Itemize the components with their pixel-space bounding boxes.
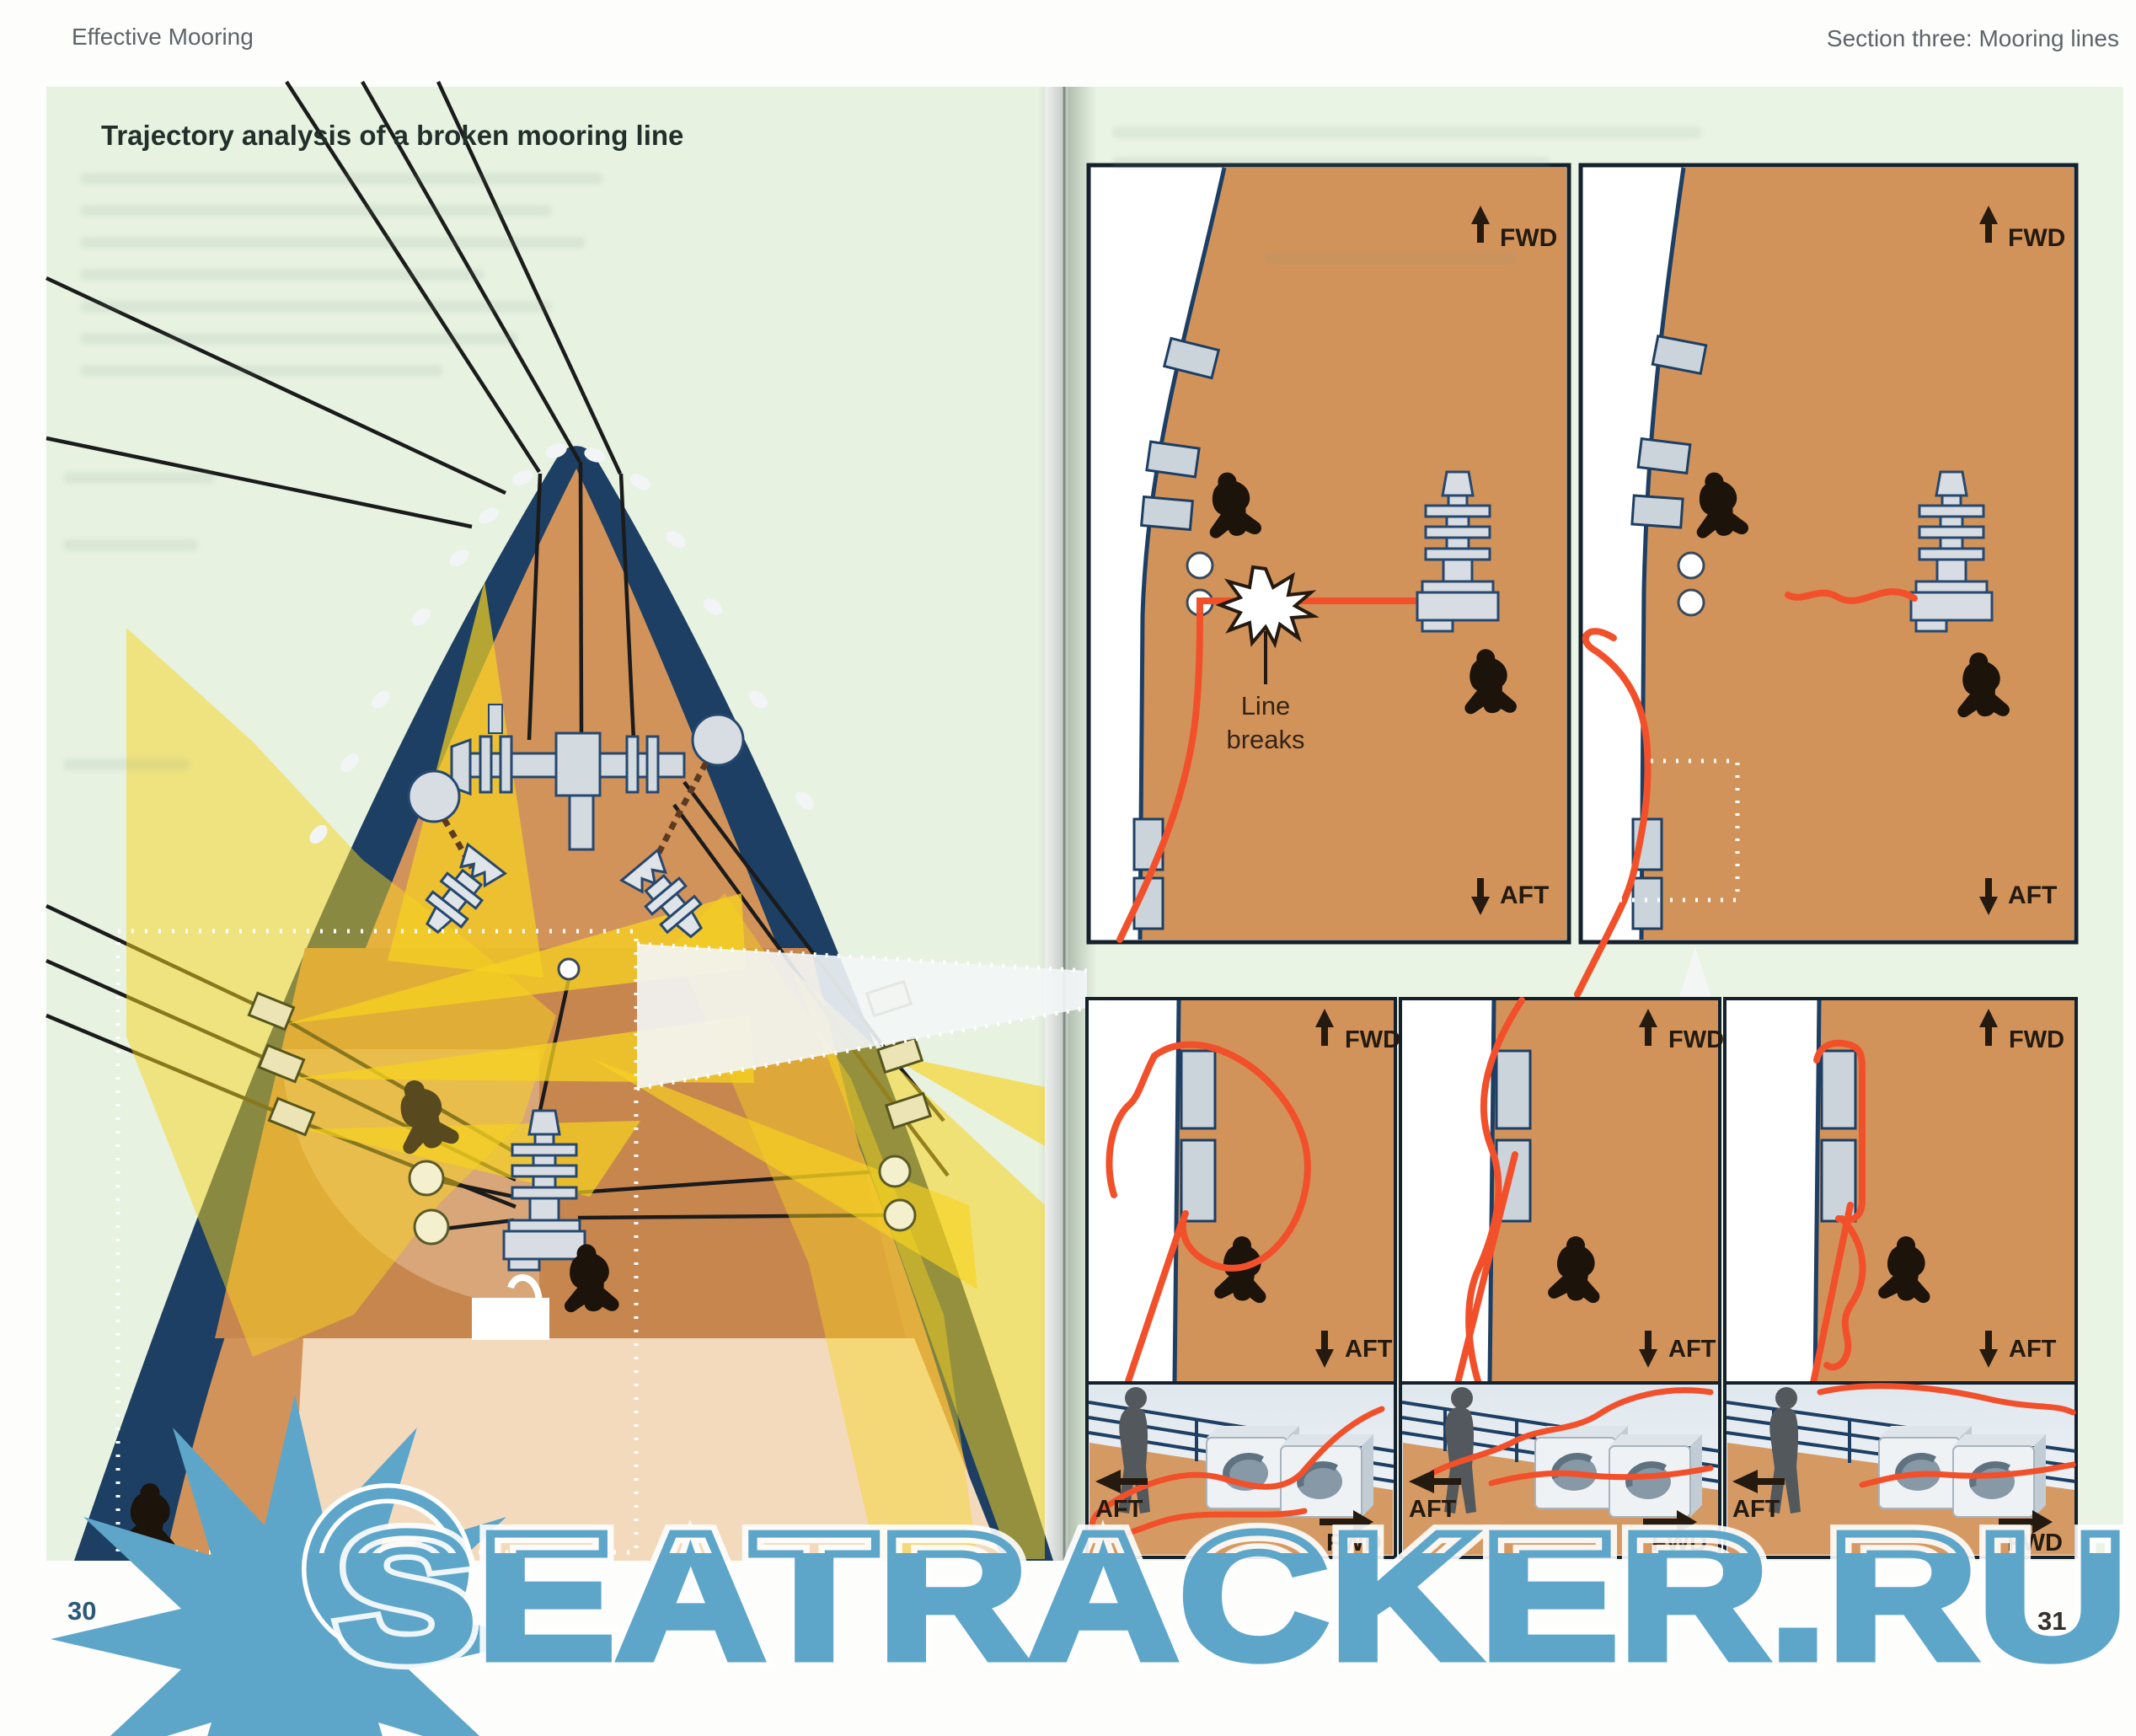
chock-icon xyxy=(1147,442,1199,477)
bleed-through-smudge xyxy=(80,237,586,249)
chock-icon xyxy=(1181,1140,1215,1221)
panel-after-break: FWD AFT xyxy=(1577,165,2076,994)
aft-label: AFT xyxy=(2009,1336,2057,1363)
bollard-icon xyxy=(410,1161,443,1195)
plan-panels: FWD AFT FWD AFT xyxy=(1087,999,2076,1383)
bleed-through-smudge xyxy=(80,205,552,217)
bollard-icon xyxy=(415,1210,448,1244)
bollard-icon xyxy=(1678,553,1704,578)
aft-label: AFT xyxy=(1668,1336,1716,1363)
chock-icon xyxy=(1142,497,1193,530)
bollard-icon xyxy=(880,1156,910,1187)
aft-label: AFT xyxy=(1345,1336,1393,1363)
bollard-icon xyxy=(1187,553,1213,578)
bleed-through-smudge xyxy=(80,173,602,185)
chock-icon xyxy=(1632,496,1683,528)
cable-lifter-icon xyxy=(693,715,743,765)
bleed-through-smudge xyxy=(63,472,215,484)
line-breaks-label: Line xyxy=(1241,691,1291,721)
bleed-through-smudge xyxy=(80,333,518,345)
chock-icon xyxy=(1638,439,1690,474)
bleed-through-smudge xyxy=(63,758,190,770)
bleed-through-smudge xyxy=(63,539,198,551)
cable-lifter-icon xyxy=(409,771,459,822)
roller-fairlead-icon xyxy=(559,959,579,979)
page-number-right: 31 xyxy=(2037,1606,2066,1637)
figure-title: Trajectory analysis of a broken mooring … xyxy=(101,120,683,152)
fwd-label: FWD xyxy=(1500,224,1557,252)
bleed-through-smudge xyxy=(1112,157,1550,169)
fwd-label: FWD xyxy=(2009,1026,2064,1053)
fwd-label: FWD xyxy=(1345,1026,1400,1053)
chock-icon xyxy=(1633,878,1662,929)
bleed-through-smudge xyxy=(80,365,442,377)
chock-icon xyxy=(1181,1051,1215,1128)
deck xyxy=(1641,168,2074,940)
mooring-line xyxy=(581,462,581,735)
bleed-through-smudge xyxy=(1112,126,1702,138)
panel-before-break: Line breaks FWD AFT xyxy=(1089,165,1569,942)
book-scan-graphics: Line breaks FWD AFT xyxy=(0,0,2136,1736)
chock-icon xyxy=(1496,1051,1530,1128)
running-header-left: Effective Mooring xyxy=(72,24,254,51)
aft-label: AFT xyxy=(2008,881,2057,909)
bleed-through-smudge xyxy=(80,301,552,313)
bollard-icon xyxy=(885,1200,915,1230)
chock-icon xyxy=(1822,1051,1855,1128)
aft-label: AFT xyxy=(1500,881,1549,909)
bleed-through-smudge xyxy=(80,269,484,281)
page-number-left: 30 xyxy=(67,1596,96,1626)
line-breaks-label: breaks xyxy=(1226,725,1304,754)
book-spread: Line breaks FWD AFT xyxy=(0,0,2136,1736)
bleed-through-smudge xyxy=(1264,253,1517,265)
bollard-icon xyxy=(1678,590,1704,615)
figure-before-after-break: Line breaks FWD AFT xyxy=(1089,165,2076,999)
fwd-label: FWD xyxy=(2008,224,2065,252)
fwd-label: FWD xyxy=(1668,1026,1724,1053)
running-header-right: Section three: Mooring lines xyxy=(1827,25,2119,52)
figure-trajectory-variants: FWD AFT FWD AFT xyxy=(1087,999,2076,1557)
